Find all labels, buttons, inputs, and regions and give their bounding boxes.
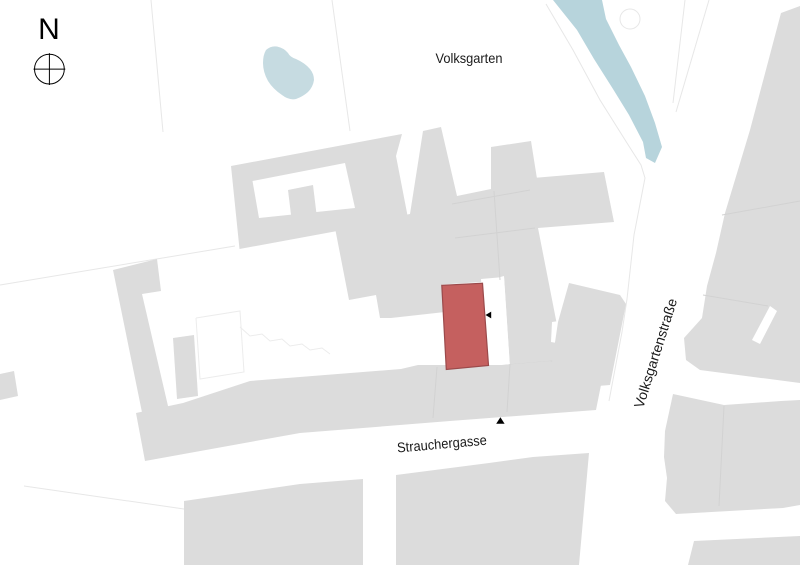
svg-text:Volksgarten: Volksgarten [436, 50, 503, 66]
svg-text:N: N [38, 13, 60, 46]
